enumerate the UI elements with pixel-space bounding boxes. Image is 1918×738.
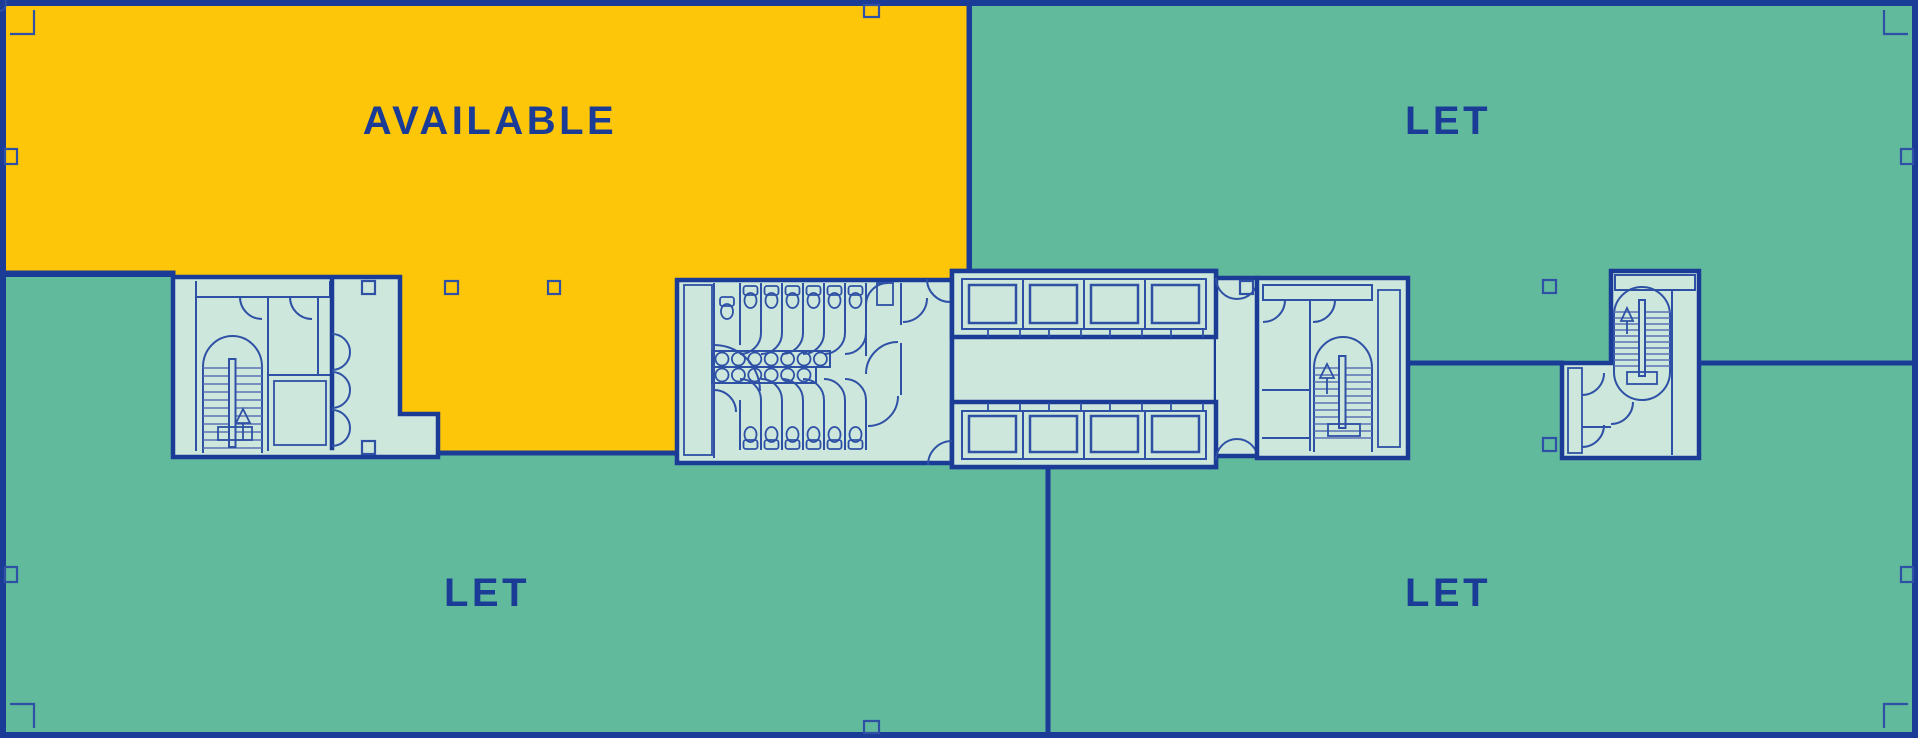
unit-label-available: AVAILABLE	[363, 99, 617, 143]
floorplan-stage: AVAILABLE LET LET LET	[0, 0, 1918, 738]
core-right	[1257, 278, 1408, 458]
unit-label-let-bottom-left: LET	[444, 571, 530, 615]
unit-label-let-top-right: LET	[1405, 99, 1491, 143]
core-lift-lobby	[927, 271, 1258, 467]
lift-bank-bottom	[952, 402, 1216, 467]
unit-label-let-bottom-right: LET	[1405, 571, 1491, 615]
core-left	[173, 277, 438, 457]
floor-plan-svg: AVAILABLE LET LET LET	[0, 0, 1918, 738]
lift-bank-top	[952, 271, 1216, 337]
